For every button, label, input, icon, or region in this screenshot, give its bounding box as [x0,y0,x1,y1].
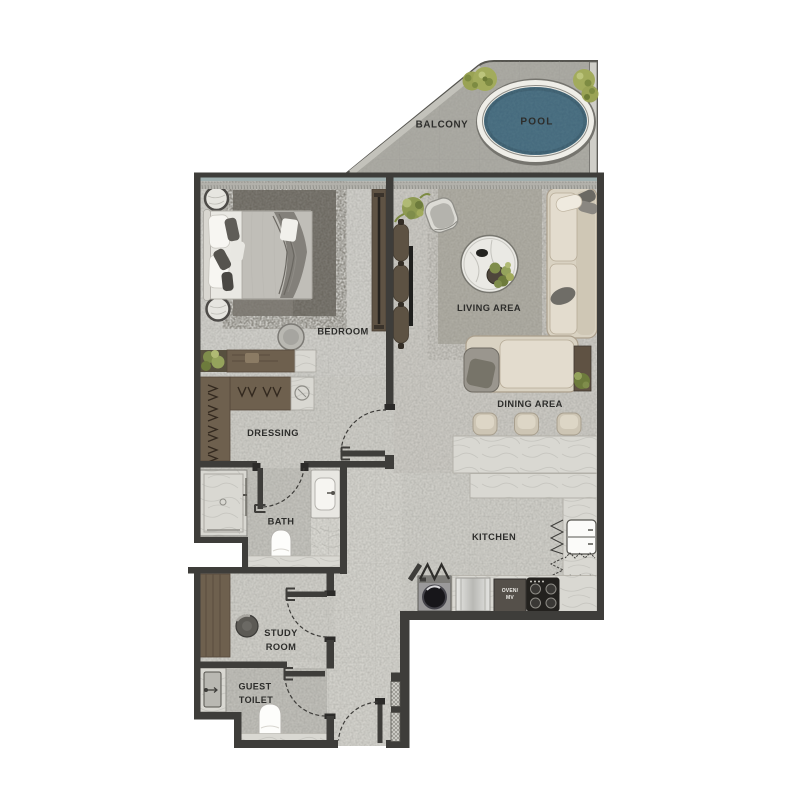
svg-text:TOILET: TOILET [239,695,273,705]
svg-text:BATH: BATH [268,517,295,527]
svg-text:OVEN/: OVEN/ [502,588,519,594]
svg-text:MV: MV [506,595,514,601]
svg-text:ROOM: ROOM [266,642,297,652]
svg-text:DINING AREA: DINING AREA [497,399,563,409]
svg-text:GUEST: GUEST [238,682,271,692]
svg-text:KITCHEN: KITCHEN [472,532,516,542]
svg-text:LIVING AREA: LIVING AREA [457,303,521,313]
svg-text:BEDROOM: BEDROOM [317,327,368,337]
svg-text:DRESSING: DRESSING [247,428,299,438]
svg-text:BALCONY: BALCONY [416,120,469,131]
svg-text:POOL: POOL [520,117,553,128]
svg-text:STUDY: STUDY [264,628,298,638]
